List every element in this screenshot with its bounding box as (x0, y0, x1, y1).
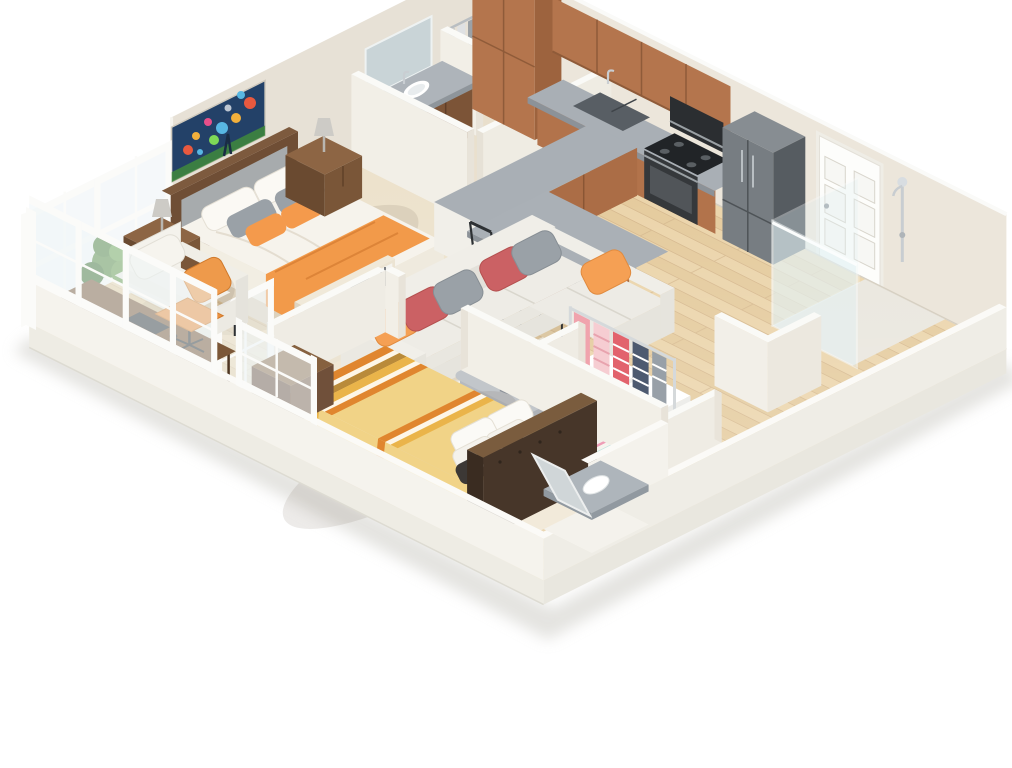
floorplan-render (0, 0, 1012, 768)
floorplan-svg (0, 0, 1012, 768)
